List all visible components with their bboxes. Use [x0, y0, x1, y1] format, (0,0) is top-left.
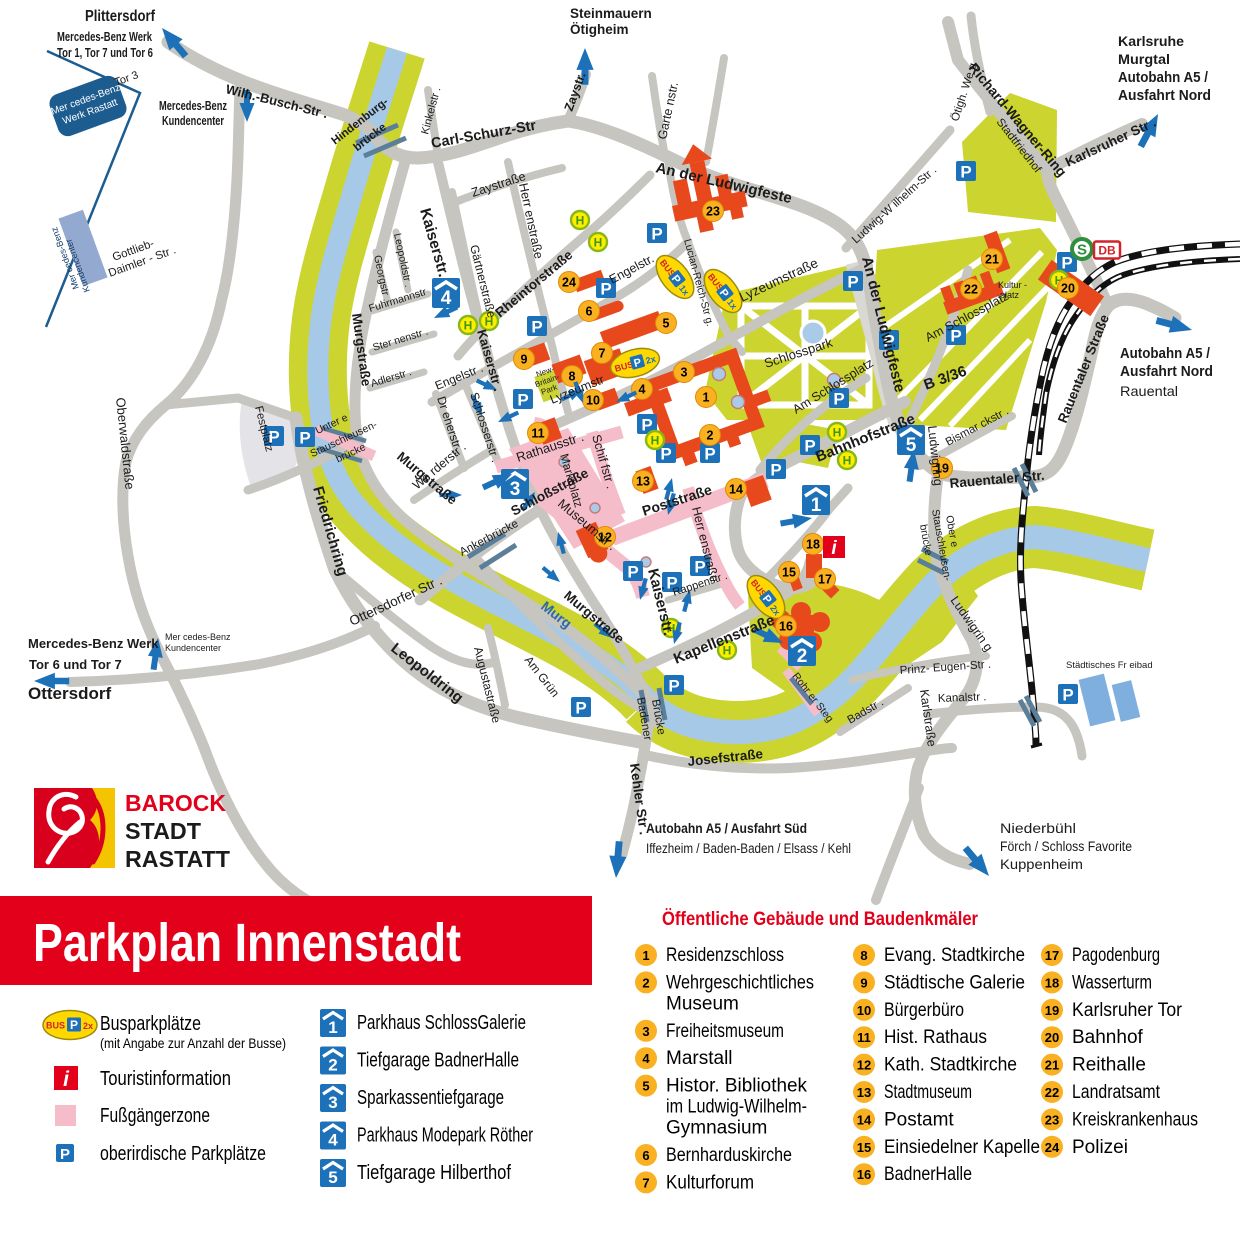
svg-text:24: 24 — [562, 276, 576, 290]
svg-text:Touristinformation: Touristinformation — [100, 1068, 231, 1090]
svg-text:S: S — [1077, 242, 1087, 259]
svg-text:8: 8 — [860, 948, 867, 963]
svg-text:Kundencenter: Kundencenter — [162, 114, 224, 128]
svg-text:6: 6 — [642, 1148, 649, 1163]
svg-text:Plittersdorf: Plittersdorf — [85, 8, 156, 25]
svg-text:BAROCK: BAROCK — [125, 790, 226, 816]
svg-text:Mercedes-Benz Werk: Mercedes-Benz Werk — [28, 636, 159, 651]
svg-text:18: 18 — [806, 538, 820, 552]
svg-text:Kath. Stadtkirche: Kath. Stadtkirche — [884, 1055, 1017, 1076]
svg-text:8: 8 — [569, 370, 576, 384]
svg-text:2: 2 — [328, 1056, 337, 1075]
svg-text:2x: 2x — [83, 1021, 93, 1031]
svg-text:Museum: Museum — [666, 993, 739, 1014]
svg-text:3: 3 — [681, 366, 688, 380]
svg-text:P: P — [70, 1018, 78, 1032]
svg-text:Evang. Stadtkirche: Evang. Stadtkirche — [884, 945, 1025, 966]
svg-text:Residenzschloss: Residenzschloss — [666, 945, 784, 966]
svg-text:4: 4 — [441, 288, 452, 309]
svg-text:9: 9 — [521, 353, 528, 367]
svg-text:Tor 1, Tor 7 und Tor 6: Tor 1, Tor 7 und Tor 6 — [57, 45, 153, 60]
svg-text:15: 15 — [782, 566, 796, 580]
svg-text:Städtische Galerie: Städtische Galerie — [884, 972, 1025, 993]
svg-text:10: 10 — [857, 1003, 871, 1018]
svg-text:Gymnasium: Gymnasium — [666, 1118, 767, 1139]
svg-text:platz: platz — [1000, 290, 1020, 300]
svg-text:Hist. Rathaus: Hist. Rathaus — [884, 1027, 987, 1048]
svg-text:P: P — [60, 1146, 70, 1163]
svg-text:Marstall: Marstall — [666, 1048, 733, 1069]
svg-text:3: 3 — [328, 1093, 337, 1112]
svg-text:Parkplan Innenstadt: Parkplan Innenstadt — [33, 913, 461, 973]
svg-text:4: 4 — [642, 1051, 650, 1066]
svg-text:BadnerHalle: BadnerHalle — [884, 1164, 972, 1185]
svg-text:17: 17 — [1045, 948, 1059, 963]
svg-text:22: 22 — [964, 283, 978, 297]
svg-text:13: 13 — [857, 1085, 871, 1100]
svg-text:Autobahn A5 /: Autobahn A5 / — [1120, 346, 1210, 362]
svg-text:4: 4 — [328, 1131, 338, 1150]
svg-text:13: 13 — [636, 475, 650, 489]
svg-text:Kreiskrankenhaus: Kreiskrankenhaus — [1072, 1109, 1198, 1130]
svg-text:Ausfahrt Nord: Ausfahrt Nord — [1118, 88, 1211, 104]
svg-text:7: 7 — [642, 1175, 649, 1190]
svg-text:Tiefgarage Hilberthof: Tiefgarage Hilberthof — [357, 1162, 511, 1184]
svg-text:15: 15 — [857, 1140, 871, 1155]
svg-text:1: 1 — [703, 391, 710, 405]
svg-text:Parkhaus Modepark Röther: Parkhaus Modepark Röther — [357, 1125, 533, 1147]
svg-text:Parkhaus SchlossGalerie: Parkhaus SchlossGalerie — [357, 1012, 526, 1034]
svg-text:Kulturforum: Kulturforum — [666, 1172, 754, 1193]
svg-text:3: 3 — [642, 1024, 649, 1039]
svg-text:Polizei: Polizei — [1072, 1137, 1128, 1158]
svg-text:10: 10 — [586, 394, 600, 408]
svg-text:Fußgängerzone: Fußgängerzone — [100, 1105, 210, 1127]
svg-text:Ötigheim: Ötigheim — [570, 22, 629, 37]
svg-text:Kultur -: Kultur - — [998, 280, 1027, 290]
svg-text:16: 16 — [779, 620, 793, 634]
svg-text:Einsiedelner Kapelle: Einsiedelner Kapelle — [884, 1137, 1040, 1158]
svg-text:21: 21 — [985, 253, 999, 267]
svg-text:Freiheitsmuseum: Freiheitsmuseum — [666, 1021, 784, 1042]
svg-text:18: 18 — [1045, 975, 1059, 990]
svg-text:6: 6 — [586, 305, 593, 319]
svg-text:5: 5 — [663, 317, 670, 331]
svg-text:14: 14 — [857, 1112, 872, 1127]
svg-text:Städtisches Fr eibad: Städtisches Fr eibad — [1066, 660, 1153, 671]
svg-text:Kuppenheim: Kuppenheim — [1000, 856, 1083, 872]
svg-text:9: 9 — [860, 975, 867, 990]
svg-text:Postamt: Postamt — [884, 1109, 954, 1130]
svg-text:Öffentliche Gebäude und Bauden: Öffentliche Gebäude und Baudenkmäler — [662, 907, 978, 930]
svg-text:Autobahn A5 / Ausfahrt Süd: Autobahn A5 / Ausfahrt Süd — [646, 820, 807, 836]
svg-text:Wasserturm: Wasserturm — [1072, 972, 1152, 993]
svg-text:Sparkassentiefgarage: Sparkassentiefgarage — [357, 1087, 504, 1109]
svg-text:20: 20 — [1045, 1030, 1059, 1045]
svg-text:11: 11 — [531, 427, 544, 441]
svg-text:7: 7 — [599, 347, 606, 361]
svg-text:Karlsruhe: Karlsruhe — [1118, 33, 1184, 49]
svg-text:Ottersdorf: Ottersdorf — [28, 684, 111, 703]
svg-text:i: i — [831, 538, 837, 559]
svg-text:20: 20 — [1061, 282, 1075, 296]
svg-text:Tor 6 und Tor 7: Tor 6 und Tor 7 — [29, 657, 122, 672]
svg-text:14: 14 — [729, 483, 743, 497]
svg-text:Iffezheim / Baden-Baden / Elsa: Iffezheim / Baden-Baden / Elsass / Kehl — [646, 841, 851, 856]
svg-text:23: 23 — [706, 205, 720, 219]
svg-text:Förch / Schloss Favorite: Förch / Schloss Favorite — [1000, 838, 1132, 854]
svg-text:1: 1 — [328, 1018, 337, 1037]
svg-text:17: 17 — [818, 573, 832, 587]
svg-text:Bernharduskirche: Bernharduskirche — [666, 1145, 792, 1166]
svg-text:2: 2 — [707, 429, 714, 443]
svg-text:24: 24 — [1045, 1140, 1060, 1155]
svg-text:2: 2 — [642, 975, 649, 990]
svg-text:Autobahn A5 /: Autobahn A5 / — [1118, 70, 1208, 86]
svg-text:12: 12 — [857, 1058, 871, 1073]
svg-text:19: 19 — [1045, 1003, 1059, 1018]
svg-text:2: 2 — [797, 646, 808, 667]
svg-text:im Ludwig-Wilhelm-: im Ludwig-Wilhelm- — [666, 1097, 807, 1118]
svg-text:Pagodenburg: Pagodenburg — [1072, 945, 1160, 966]
svg-text:STADT: STADT — [125, 818, 201, 844]
svg-text:Steinmauern: Steinmauern — [570, 6, 652, 21]
svg-text:Bahnhof: Bahnhof — [1072, 1027, 1144, 1048]
svg-text:5: 5 — [642, 1079, 649, 1094]
svg-text:Niederbühl: Niederbühl — [1000, 820, 1076, 836]
svg-text:1: 1 — [642, 948, 649, 963]
svg-text:Landratsamt: Landratsamt — [1072, 1082, 1161, 1103]
svg-text:11: 11 — [857, 1030, 871, 1045]
svg-text:5: 5 — [906, 435, 917, 456]
svg-text:Murgtal: Murgtal — [1118, 51, 1170, 67]
svg-text:Reithalle: Reithalle — [1072, 1055, 1146, 1076]
svg-text:4: 4 — [639, 383, 646, 397]
svg-text:Histor. Bibliothek: Histor. Bibliothek — [666, 1076, 807, 1097]
svg-text:Rauental: Rauental — [1120, 383, 1178, 399]
svg-text:oberirdische Parkplätze: oberirdische Parkplätze — [100, 1143, 266, 1165]
svg-text:5: 5 — [328, 1168, 337, 1187]
svg-text:BUS: BUS — [46, 1021, 65, 1031]
svg-text:(mit Angabe zur Anzahl der Bus: (mit Angabe zur Anzahl der Busse) — [100, 1035, 286, 1051]
svg-text:1: 1 — [811, 495, 822, 516]
svg-text:Busparkplätze: Busparkplätze — [100, 1013, 201, 1035]
svg-text:Kundencenter: Kundencenter — [165, 643, 221, 653]
svg-text:Mer cedes-Benz: Mer cedes-Benz — [165, 632, 231, 642]
svg-text:RASTATT: RASTATT — [125, 846, 230, 872]
svg-text:Wehrgeschichtliches: Wehrgeschichtliches — [666, 972, 814, 993]
svg-text:21: 21 — [1045, 1058, 1059, 1073]
svg-text:DB: DB — [1098, 244, 1116, 258]
svg-text:22: 22 — [1045, 1085, 1059, 1100]
svg-text:Stadtmuseum: Stadtmuseum — [884, 1082, 972, 1103]
svg-text:Karlsruher Tor: Karlsruher Tor — [1072, 1000, 1183, 1021]
svg-text:16: 16 — [857, 1167, 871, 1182]
svg-text:Mercedes-Benz: Mercedes-Benz — [159, 99, 227, 113]
svg-text:3: 3 — [510, 479, 521, 500]
svg-text:Mercedes-Benz Werk: Mercedes-Benz Werk — [57, 29, 153, 44]
svg-text:Ausfahrt Nord: Ausfahrt Nord — [1120, 364, 1213, 380]
svg-text:Tiefgarage BadnerHalle: Tiefgarage BadnerHalle — [357, 1050, 519, 1072]
svg-text:23: 23 — [1045, 1112, 1059, 1127]
svg-text:Bürgerbüro: Bürgerbüro — [884, 1000, 964, 1021]
svg-text:Kanalstr .: Kanalstr . — [938, 691, 987, 705]
